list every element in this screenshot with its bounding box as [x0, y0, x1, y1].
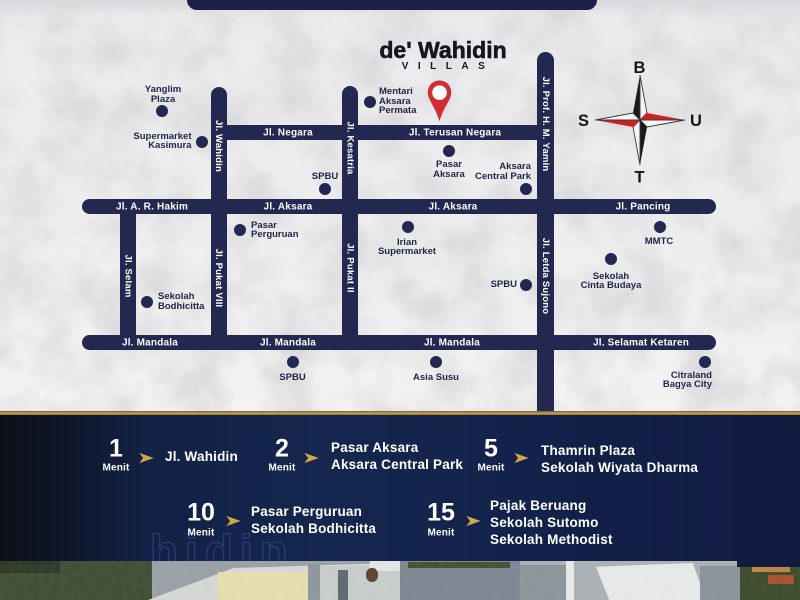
svg-text:B: B — [634, 59, 646, 77]
svg-text:S: S — [578, 112, 589, 130]
svg-text:U: U — [690, 112, 702, 130]
svg-text:T: T — [634, 169, 644, 187]
